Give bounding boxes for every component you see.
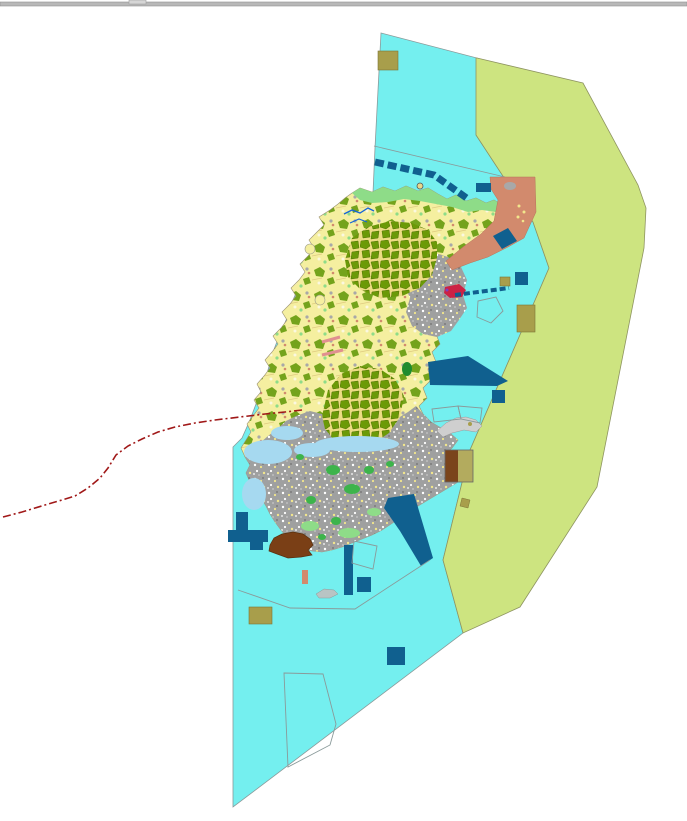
green-patch-light-2 <box>338 528 360 538</box>
salmon-blob-south <box>302 570 308 584</box>
breakwater-west-1 <box>236 512 248 532</box>
coastal-promontory-north <box>305 244 315 254</box>
navy-square-southeast <box>492 390 505 403</box>
breakwater-west-3 <box>250 540 263 550</box>
salmon-speck-2 <box>523 211 526 214</box>
islet-khaki-dot <box>468 422 472 426</box>
salmon-speck-4 <box>522 220 525 223</box>
green-patch-2 <box>344 484 360 494</box>
salmon-inner-gray <box>504 182 516 190</box>
green-patch-7 <box>318 534 326 540</box>
khaki-rect-bottom <box>249 607 272 624</box>
port-entrance-dot-1 <box>446 289 449 292</box>
green-patch-6 <box>331 517 341 525</box>
green-patch-5 <box>386 461 394 467</box>
salmon-speck-3 <box>517 216 520 219</box>
window-top-bar <box>0 2 687 6</box>
green-patch-light-1 <box>301 521 319 531</box>
map-canvas[interactable] <box>0 0 687 821</box>
wetland-west-1 <box>244 440 292 464</box>
green-patch-dark <box>402 362 412 376</box>
navy-square-harbor <box>357 577 371 592</box>
salmon-speck-1 <box>518 205 521 208</box>
khaki-square-east-small <box>500 277 510 286</box>
parcel-khaki-half <box>458 450 473 482</box>
khaki-square-top <box>378 51 398 70</box>
map-feature-layer <box>0 0 687 807</box>
map-viewport <box>0 0 687 821</box>
green-patch-8 <box>296 454 304 460</box>
navy-rect-northeast <box>476 183 491 192</box>
khaki-rect-east <box>517 305 535 332</box>
wetland-west-3 <box>271 426 303 440</box>
coastal-promontory-west <box>315 295 325 305</box>
khaki-diamond-small <box>460 498 470 508</box>
monument-circle-marker <box>417 183 423 189</box>
wetland-west-2 <box>242 478 266 510</box>
green-patch-1 <box>326 465 340 475</box>
green-patch-4 <box>364 466 374 474</box>
green-patch-3 <box>306 496 316 504</box>
navy-square-bottom <box>387 647 405 665</box>
parcel-brown-half <box>445 450 458 482</box>
navy-square-east <box>515 272 528 285</box>
pier-vertical-south <box>344 545 353 595</box>
green-patch-light-3 <box>367 508 381 516</box>
window-top-bar-notch <box>129 0 146 4</box>
